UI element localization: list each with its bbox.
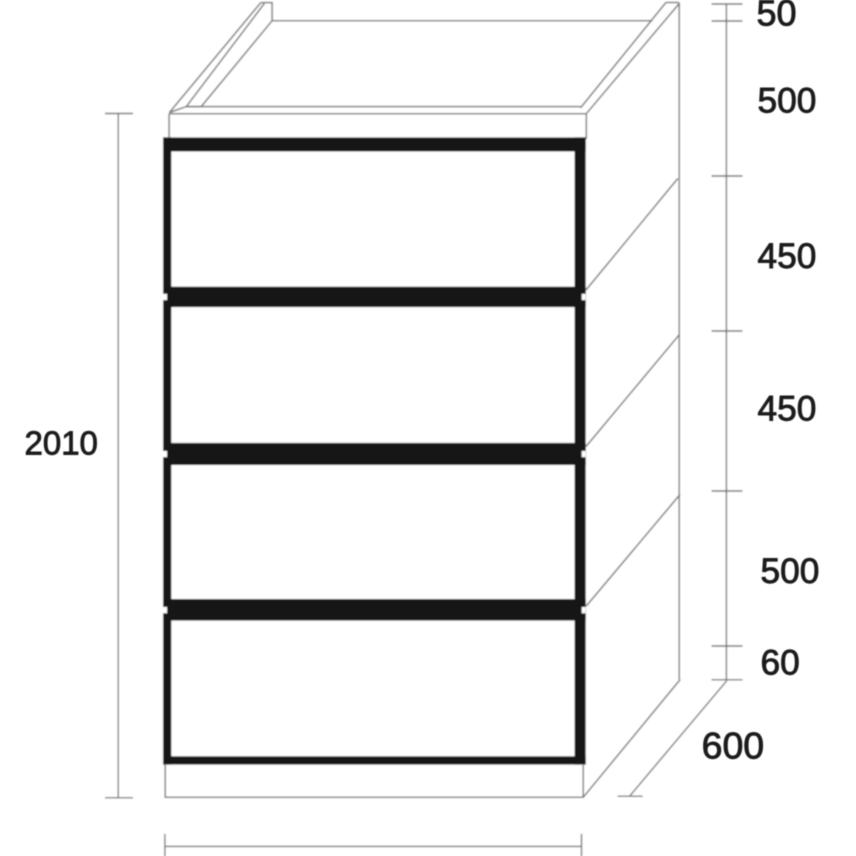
- svg-text:50: 50: [757, 0, 797, 34]
- svg-text:2010: 2010: [25, 425, 98, 462]
- svg-text:500: 500: [761, 552, 820, 591]
- svg-text:600: 600: [702, 725, 765, 767]
- svg-text:450: 450: [758, 237, 817, 276]
- svg-text:500: 500: [758, 82, 817, 121]
- svg-text:60: 60: [761, 644, 800, 683]
- svg-text:450: 450: [758, 390, 817, 429]
